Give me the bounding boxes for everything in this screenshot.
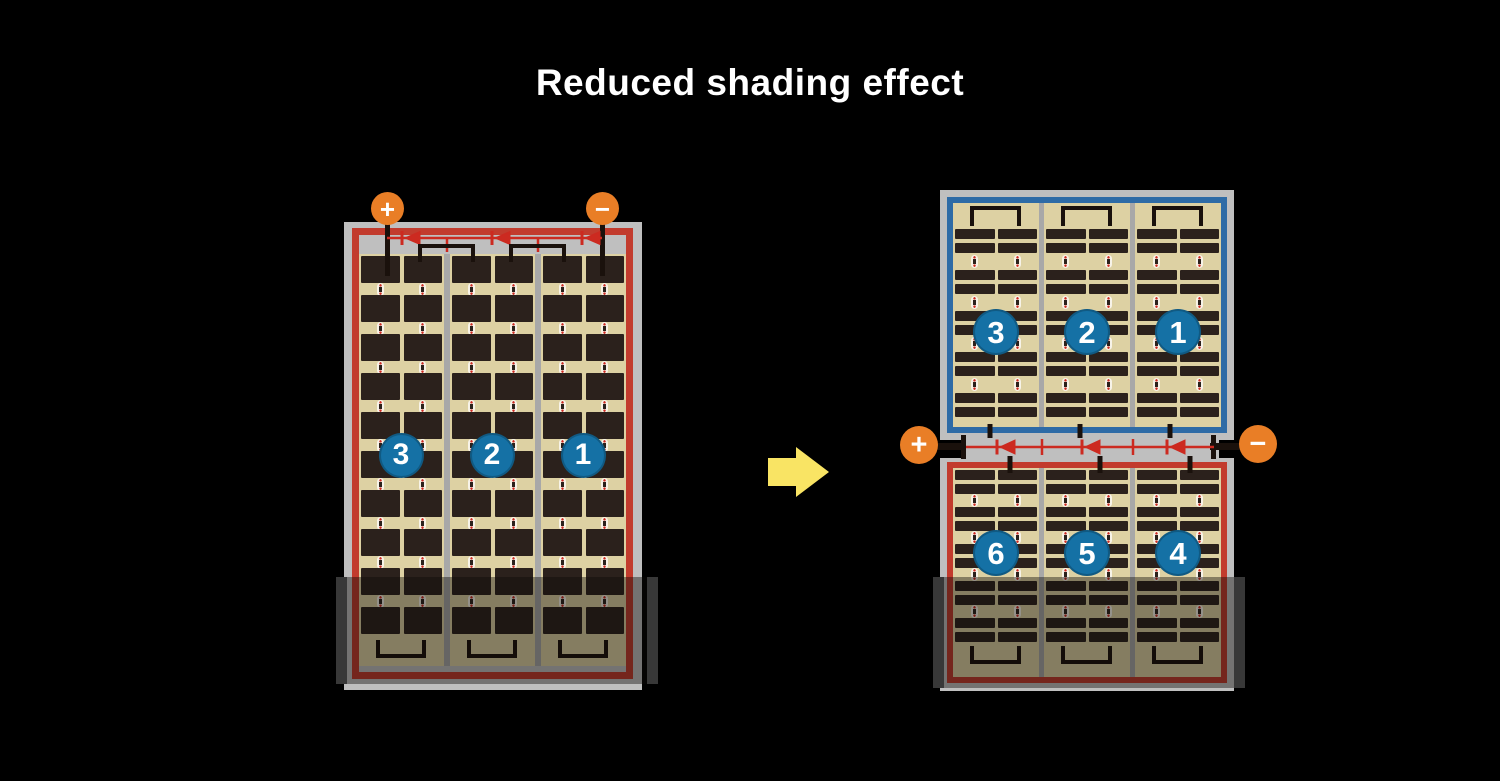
cell-connector-dot	[1014, 378, 1021, 391]
cell-connector-dot	[601, 556, 608, 569]
connector-slot	[1089, 253, 1129, 270]
cell-connector-dot	[971, 378, 978, 391]
solar-cell-strip	[955, 229, 995, 239]
solar-cell-strip	[1137, 229, 1177, 239]
connector-row	[1137, 494, 1219, 507]
wire-bridge	[970, 206, 1021, 226]
cell-connector-dot	[419, 478, 426, 491]
strip-row	[1046, 229, 1128, 239]
solar-cell	[361, 334, 400, 361]
connector-row	[452, 361, 533, 373]
solar-cell-strip	[1137, 270, 1177, 280]
connector-slot	[361, 283, 400, 295]
solar-cell-strip	[955, 270, 995, 280]
strip-row	[1137, 229, 1219, 239]
solar-cell	[495, 490, 534, 517]
strip-row	[955, 507, 1037, 517]
right-diode-bus	[930, 424, 1270, 482]
connector-slot	[361, 556, 400, 568]
connector-slot	[1137, 294, 1177, 311]
connector-slot	[1180, 376, 1220, 393]
strip-row	[955, 484, 1037, 494]
cell-connector-dot	[559, 322, 566, 335]
cell-connector-dot	[559, 556, 566, 569]
connector-row	[452, 517, 533, 529]
connector-row	[1046, 376, 1128, 393]
cell-connector-dot	[419, 283, 426, 296]
connector-row	[955, 253, 1037, 270]
cell-connector-dot	[419, 400, 426, 413]
connector-slot	[452, 283, 491, 295]
connector-slot	[586, 361, 625, 373]
transform-arrow-icon	[765, 444, 835, 500]
wire-bridge	[1152, 206, 1203, 226]
solar-cell	[586, 295, 625, 322]
connector-row	[543, 400, 624, 412]
connector-slot	[998, 376, 1038, 393]
connector-row	[361, 556, 442, 568]
solar-cell-strip	[1046, 521, 1086, 531]
connector-slot	[404, 322, 443, 334]
connector-slot	[361, 400, 400, 412]
string-number-badge: 3	[973, 309, 1019, 355]
connector-slot	[543, 556, 582, 568]
wire-bridge	[509, 244, 566, 262]
cell-row	[361, 373, 442, 400]
wire-bridge	[1061, 206, 1112, 226]
solar-cell-strip	[1137, 284, 1177, 294]
solar-cell-strip	[998, 243, 1038, 253]
right-negative-terminal: −	[1239, 425, 1277, 463]
cell-connector-dot	[1105, 378, 1112, 391]
cell-connector-dot	[510, 400, 517, 413]
strip-row	[1046, 284, 1128, 294]
connector-row	[1137, 376, 1219, 393]
solar-cell-strip	[1180, 366, 1220, 376]
strip-row	[1046, 407, 1128, 417]
connector-row	[1046, 253, 1128, 270]
connector-row	[452, 322, 533, 334]
solar-cell-strip	[1089, 284, 1129, 294]
strip-row	[1046, 507, 1128, 517]
cell-connector-dot	[377, 556, 384, 569]
solar-cell-strip	[1137, 366, 1177, 376]
string-number-badge: 2	[470, 433, 515, 478]
cell-connector-dot	[1105, 255, 1112, 268]
connector-slot	[495, 517, 534, 529]
cell-connector-dot	[1153, 378, 1160, 391]
cell-row	[361, 529, 442, 556]
cell-row	[543, 334, 624, 361]
solar-cell-strip	[1089, 393, 1129, 403]
connector-slot	[361, 361, 400, 373]
cell-row	[452, 529, 533, 556]
cell-connector-dot	[1062, 296, 1069, 309]
solar-cell-strip	[1180, 270, 1220, 280]
strip-row	[1046, 243, 1128, 253]
connector-slot	[1046, 253, 1086, 270]
cell-connector-dot	[559, 400, 566, 413]
connector-slot	[1089, 494, 1129, 507]
solar-cell-strip	[1089, 484, 1129, 494]
connector-slot	[1137, 376, 1177, 393]
strip-row	[1137, 366, 1219, 376]
left-positive-terminal: +	[371, 192, 404, 225]
solar-cell-strip	[1046, 484, 1086, 494]
solar-cell	[404, 529, 443, 556]
cell-connector-dot	[419, 556, 426, 569]
solar-cell-strip	[1089, 407, 1129, 417]
cell-connector-dot	[1014, 296, 1021, 309]
cell-connector-dot	[1153, 296, 1160, 309]
connector-slot	[586, 400, 625, 412]
cell-connector-dot	[559, 478, 566, 491]
cell-connector-dot	[468, 478, 475, 491]
connector-slot	[586, 283, 625, 295]
string-number-badge: 1	[1155, 309, 1201, 355]
cell-connector-dot	[971, 255, 978, 268]
cell-row	[361, 334, 442, 361]
solar-cell-strip	[1089, 366, 1129, 376]
strip-row	[1046, 484, 1128, 494]
connector-slot	[495, 556, 534, 568]
solar-cell-strip	[1089, 507, 1129, 517]
connector-slot	[543, 361, 582, 373]
connector-row	[361, 517, 442, 529]
strip-row	[1137, 407, 1219, 417]
connector-slot	[495, 478, 534, 490]
solar-cell-strip	[1137, 521, 1177, 531]
solar-cell-strip	[1089, 521, 1129, 531]
strip-row	[1137, 507, 1219, 517]
cell-connector-dot	[468, 556, 475, 569]
strip-row	[955, 393, 1037, 403]
cell-connector-dot	[971, 296, 978, 309]
diagram-stage: Reduced shading effect	[0, 0, 1500, 781]
cell-connector-dot	[468, 400, 475, 413]
solar-cell	[586, 490, 625, 517]
solar-cell-strip	[998, 507, 1038, 517]
cell-connector-dot	[559, 517, 566, 530]
solar-cell-strip	[1046, 284, 1086, 294]
shading-overlay-right	[933, 577, 1245, 688]
solar-cell	[495, 529, 534, 556]
solar-cell-strip	[955, 393, 995, 403]
solar-cell	[452, 490, 491, 517]
solar-cell	[361, 295, 400, 322]
cell-connector-dot	[1062, 255, 1069, 268]
connector-slot	[361, 322, 400, 334]
connector-slot	[404, 556, 443, 568]
connector-slot	[1046, 376, 1086, 393]
connector-slot	[495, 322, 534, 334]
strip-row	[1137, 484, 1219, 494]
connector-row	[543, 556, 624, 568]
connector-slot	[495, 283, 534, 295]
cell-connector-dot	[601, 478, 608, 491]
solar-cell-strip	[1046, 229, 1086, 239]
connector-slot	[404, 517, 443, 529]
connector-slot	[543, 517, 582, 529]
solar-cell	[452, 295, 491, 322]
connector-row	[361, 322, 442, 334]
connector-slot	[543, 283, 582, 295]
strip-row	[1137, 243, 1219, 253]
solar-cell-strip	[1137, 393, 1177, 403]
connector-slot	[1089, 294, 1129, 311]
solar-cell-strip	[1046, 366, 1086, 376]
strip-row	[1046, 270, 1128, 280]
connector-slot	[955, 494, 995, 507]
cell-connector-dot	[1153, 255, 1160, 268]
solar-cell-strip	[1180, 407, 1220, 417]
connector-slot	[586, 517, 625, 529]
solar-cell-strip	[1089, 243, 1129, 253]
cell-connector-dot	[1196, 296, 1203, 309]
solar-cell-strip	[1046, 243, 1086, 253]
connector-slot	[404, 400, 443, 412]
cell-connector-dot	[1196, 378, 1203, 391]
strip-row	[1137, 284, 1219, 294]
solar-cell-strip	[998, 393, 1038, 403]
cell-connector-dot	[1105, 296, 1112, 309]
connector-slot	[452, 556, 491, 568]
cell-connector-dot	[510, 361, 517, 374]
connector-slot	[404, 478, 443, 490]
solar-cell	[404, 490, 443, 517]
connector-slot	[586, 322, 625, 334]
cell-row	[452, 490, 533, 517]
cell-row	[452, 295, 533, 322]
solar-cell	[543, 529, 582, 556]
connector-slot	[543, 400, 582, 412]
solar-cell	[404, 295, 443, 322]
cell-connector-dot	[1014, 255, 1021, 268]
cell-connector-dot	[510, 322, 517, 335]
connector-slot	[1137, 253, 1177, 270]
solar-cell-strip	[1180, 243, 1220, 253]
connector-row	[452, 283, 533, 295]
diagram-title: Reduced shading effect	[0, 62, 1500, 104]
solar-cell	[495, 334, 534, 361]
connector-slot	[998, 294, 1038, 311]
cell-connector-dot	[1105, 494, 1112, 507]
solar-cell-strip	[998, 521, 1038, 531]
solar-cell-strip	[998, 284, 1038, 294]
string-number-badge: 3	[379, 433, 424, 478]
strip-row	[955, 229, 1037, 239]
strip-row	[955, 407, 1037, 417]
solar-cell-strip	[1137, 243, 1177, 253]
cell-connector-dot	[377, 517, 384, 530]
solar-cell-strip	[1137, 507, 1177, 517]
solar-cell-strip	[1137, 407, 1177, 417]
strip-row	[1046, 393, 1128, 403]
cell-connector-dot	[419, 322, 426, 335]
strip-row	[1046, 366, 1128, 376]
strip-row	[955, 284, 1037, 294]
connector-slot	[452, 361, 491, 373]
cell-connector-dot	[377, 283, 384, 296]
solar-cell-strip	[955, 284, 995, 294]
cell-connector-dot	[377, 478, 384, 491]
solar-cell	[495, 373, 534, 400]
connector-slot	[404, 283, 443, 295]
connector-slot	[452, 517, 491, 529]
connector-row	[361, 283, 442, 295]
connector-row	[361, 400, 442, 412]
solar-cell-strip	[1180, 284, 1220, 294]
connector-slot	[361, 478, 400, 490]
cell-connector-dot	[468, 361, 475, 374]
connector-slot	[1137, 494, 1177, 507]
string-number-badge: 5	[1064, 530, 1110, 576]
cell-connector-dot	[601, 517, 608, 530]
connector-row	[361, 361, 442, 373]
solar-cell-strip	[1180, 229, 1220, 239]
cell-connector-dot	[510, 478, 517, 491]
connector-slot	[586, 478, 625, 490]
connector-slot	[1046, 494, 1086, 507]
string-number-badge: 1	[561, 433, 606, 478]
shading-overlay-left	[336, 577, 658, 684]
connector-slot	[1180, 494, 1220, 507]
connector-slot	[543, 478, 582, 490]
solar-cell	[361, 529, 400, 556]
cell-row	[361, 295, 442, 322]
solar-cell-strip	[955, 521, 995, 531]
connector-row	[1046, 494, 1128, 507]
connector-row	[1137, 253, 1219, 270]
cell-connector-dot	[377, 400, 384, 413]
cell-connector-dot	[510, 556, 517, 569]
cell-connector-dot	[1196, 255, 1203, 268]
connector-row	[543, 517, 624, 529]
solar-cell	[543, 334, 582, 361]
connector-slot	[452, 400, 491, 412]
cell-connector-dot	[559, 283, 566, 296]
cell-connector-dot	[377, 361, 384, 374]
connector-slot	[495, 361, 534, 373]
cell-connector-dot	[1014, 494, 1021, 507]
solar-cell-strip	[955, 366, 995, 376]
connector-slot	[404, 361, 443, 373]
solar-cell	[543, 490, 582, 517]
cell-connector-dot	[559, 361, 566, 374]
right-positive-terminal: +	[900, 426, 938, 464]
solar-cell	[586, 334, 625, 361]
connector-slot	[1180, 253, 1220, 270]
cell-connector-dot	[1062, 494, 1069, 507]
solar-cell	[452, 373, 491, 400]
solar-cell	[586, 373, 625, 400]
solar-cell	[586, 529, 625, 556]
cell-row	[543, 373, 624, 400]
cell-connector-dot	[468, 283, 475, 296]
string-number-badge: 2	[1064, 309, 1110, 355]
connector-slot	[452, 478, 491, 490]
solar-cell	[361, 373, 400, 400]
connector-slot	[1046, 294, 1086, 311]
cell-connector-dot	[601, 283, 608, 296]
solar-cell	[452, 529, 491, 556]
connector-row	[955, 494, 1037, 507]
cell-connector-dot	[419, 361, 426, 374]
cell-row	[543, 529, 624, 556]
solar-cell	[495, 295, 534, 322]
cell-connector-dot	[468, 322, 475, 335]
solar-cell-strip	[998, 229, 1038, 239]
solar-cell-strip	[1046, 407, 1086, 417]
cell-connector-dot	[601, 400, 608, 413]
solar-cell-strip	[1180, 393, 1220, 403]
connector-slot	[955, 376, 995, 393]
connector-slot	[452, 322, 491, 334]
solar-cell-strip	[1089, 229, 1129, 239]
connector-slot	[998, 494, 1038, 507]
solar-cell	[361, 490, 400, 517]
cell-connector-dot	[1062, 378, 1069, 391]
wire-bridge	[418, 244, 475, 262]
cell-row	[543, 295, 624, 322]
cell-connector-dot	[971, 494, 978, 507]
cell-row	[452, 373, 533, 400]
solar-cell-strip	[1137, 484, 1177, 494]
solar-cell	[543, 295, 582, 322]
connector-row	[543, 283, 624, 295]
solar-cell-strip	[1046, 270, 1086, 280]
solar-cell	[543, 373, 582, 400]
connector-slot	[955, 253, 995, 270]
cell-connector-dot	[377, 322, 384, 335]
cell-connector-dot	[1196, 494, 1203, 507]
connector-row	[452, 478, 533, 490]
cell-connector-dot	[468, 517, 475, 530]
cell-row	[361, 490, 442, 517]
connector-row	[452, 400, 533, 412]
cell-row	[452, 334, 533, 361]
connector-slot	[586, 556, 625, 568]
connector-slot	[1180, 294, 1220, 311]
solar-cell	[452, 334, 491, 361]
solar-cell	[404, 373, 443, 400]
connector-row	[361, 478, 442, 490]
solar-cell-strip	[1180, 521, 1220, 531]
solar-cell-strip	[955, 243, 995, 253]
solar-cell-strip	[998, 366, 1038, 376]
connector-slot	[543, 322, 582, 334]
solar-cell-strip	[1046, 507, 1086, 517]
connector-row	[955, 376, 1037, 393]
solar-cell-strip	[955, 407, 995, 417]
solar-cell-strip	[1046, 393, 1086, 403]
connector-slot	[1089, 376, 1129, 393]
left-negative-terminal: −	[586, 192, 619, 225]
solar-cell-strip	[998, 407, 1038, 417]
cell-connector-dot	[510, 517, 517, 530]
cell-row	[543, 490, 624, 517]
solar-cell-strip	[955, 507, 995, 517]
strip-row	[1137, 270, 1219, 280]
connector-slot	[361, 517, 400, 529]
cell-connector-dot	[510, 283, 517, 296]
string-number-badge: 4	[1155, 530, 1201, 576]
strip-row	[955, 366, 1037, 376]
solar-cell-strip	[998, 484, 1038, 494]
strip-row	[1137, 393, 1219, 403]
solar-cell-strip	[1089, 270, 1129, 280]
cell-connector-dot	[601, 322, 608, 335]
